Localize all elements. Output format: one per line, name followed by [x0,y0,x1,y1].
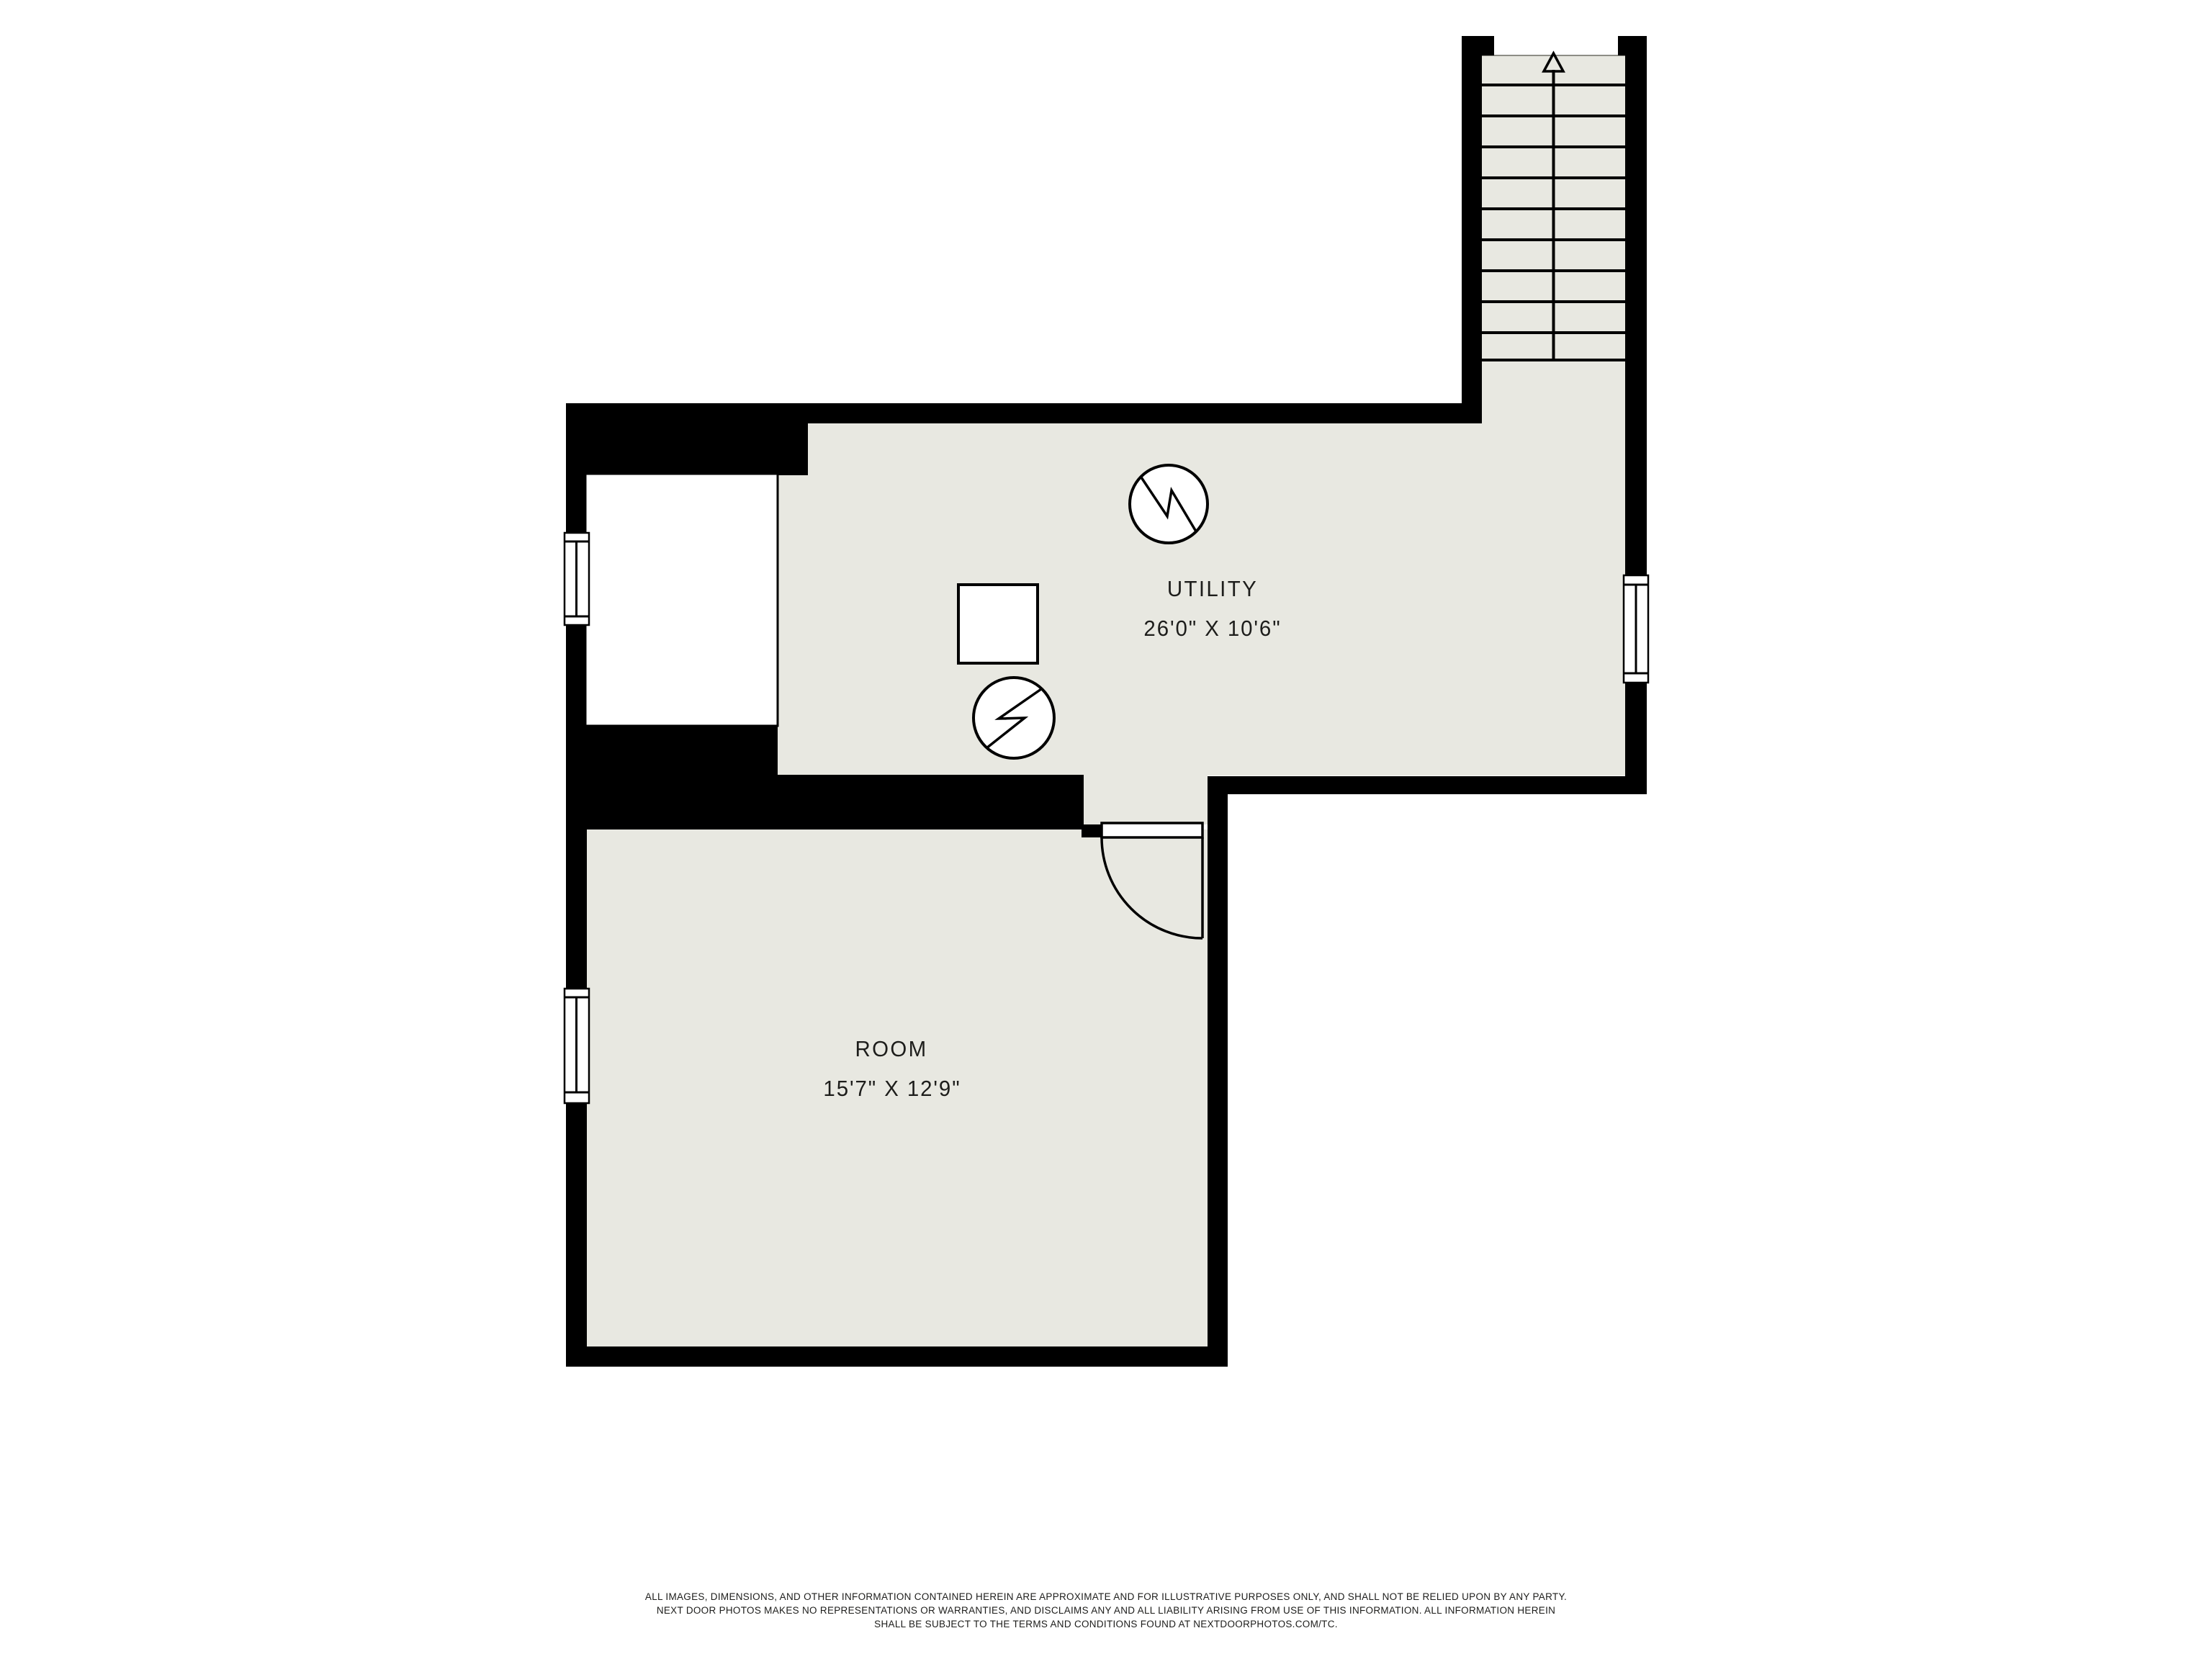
disclaimer-line-3: SHALL BE SUBJECT TO THE TERMS AND CONDIT… [386,1617,1826,1631]
utility-room-dimensions: 26'0" X 10'6" [1143,616,1281,642]
utility-floor [775,55,1625,824]
window-left-room [565,989,589,1103]
furnace-symbol-icon [1130,465,1208,543]
window-left-utility [565,533,589,625]
water-heater-symbol-icon [974,678,1054,758]
wall-room-bottom [566,1346,1228,1367]
wall-stair-top-left-stub [1462,36,1494,55]
equipment-square-icon [958,585,1038,663]
utility-room-label: UTILITY [1167,576,1258,602]
wall-room-right [1208,776,1228,1367]
wall-door-jamb-left [1082,824,1102,837]
closet-area [585,474,778,726]
wall-utility-bottom-right [1228,776,1647,794]
floorplan-drawing [0,0,2212,1659]
room-label: ROOM [855,1036,927,1062]
room-dimensions: 15'7" X 12'9" [823,1076,961,1102]
wall-room-top [775,775,1084,829]
wall-below-closet [566,725,778,829]
wall-stair-left [1462,36,1482,423]
window-right-utility [1624,575,1648,683]
wall-utility-top-thick-block [566,403,808,475]
disclaimer-line-2: NEXT DOOR PHOTOS MAKES NO REPRESENTATION… [386,1604,1826,1617]
disclaimer-line-1: ALL IMAGES, DIMENSIONS, AND OTHER INFORM… [386,1590,1826,1604]
disclaimer: ALL IMAGES, DIMENSIONS, AND OTHER INFORM… [386,1590,1826,1631]
floorplan-canvas: UTILITY 26'0" X 10'6" ROOM 15'7" X 12'9"… [0,0,2212,1659]
door-opening [1102,823,1202,837]
